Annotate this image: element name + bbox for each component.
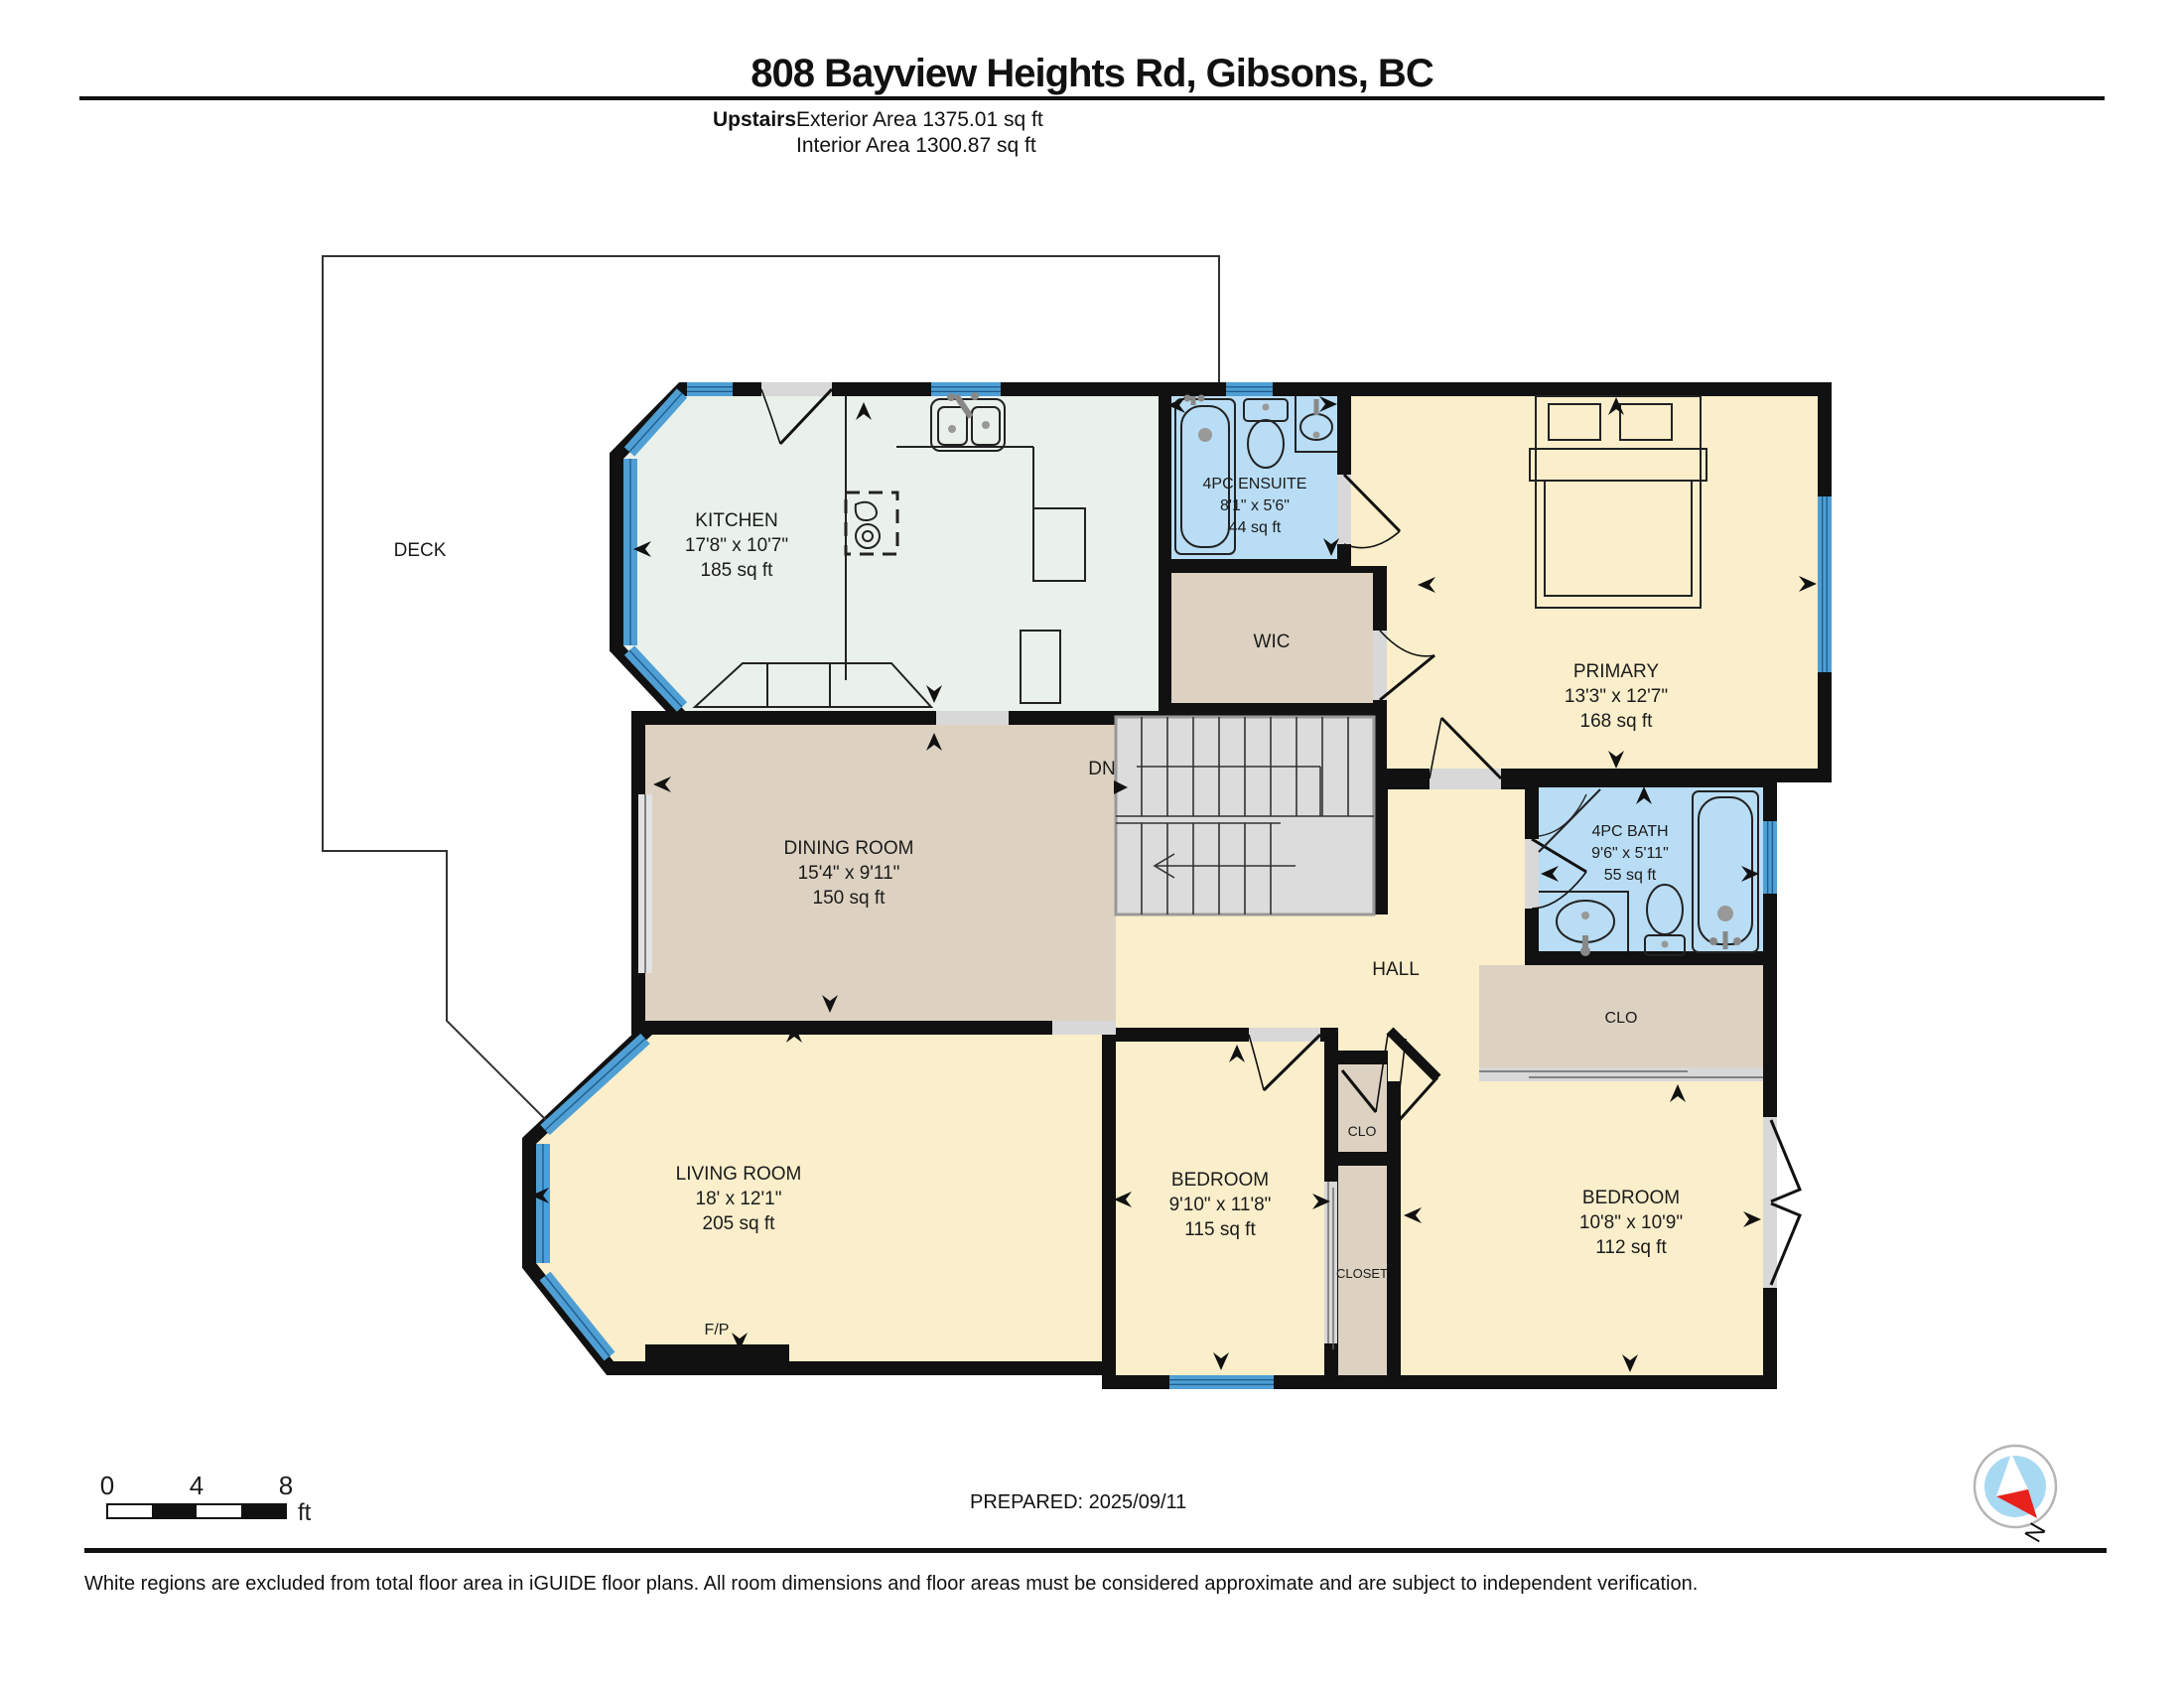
label-living-name: LIVING ROOM	[676, 1164, 802, 1185]
label-ensuite-name: 4PC ENSUITE	[1203, 476, 1307, 492]
label-dining-name: DINING ROOM	[784, 838, 914, 859]
label-kitchen-dims: 17'8" x 10'7"	[685, 535, 788, 556]
scale-tick-4: 4	[190, 1471, 204, 1500]
label-kitchen-name: KITCHEN	[695, 510, 777, 531]
label-bath-area: 55 sq ft	[1604, 867, 1657, 884]
label-dn: DN	[1088, 759, 1115, 779]
label-bath-name: 4PC BATH	[1591, 823, 1668, 840]
label-hall: HALL	[1372, 959, 1420, 980]
room-hall4	[1338, 1028, 1388, 1051]
footer-divider	[84, 1548, 2107, 1553]
label-bedroom1-dims: 9'10" x 11'8"	[1169, 1195, 1272, 1215]
room-hall1	[1116, 914, 1388, 1028]
bath-window	[1763, 821, 1777, 894]
label-deck: DECK	[394, 540, 447, 561]
bedroom2-french-opening	[1763, 1117, 1777, 1288]
kitchen-window-1	[687, 382, 733, 396]
label-bath-dims: 9'6" x 5'11"	[1591, 845, 1669, 862]
primary-window	[1818, 496, 1832, 672]
label-clo-small: CLO	[1348, 1123, 1377, 1139]
clo-sliding-doors	[1479, 1067, 1763, 1081]
label-bedroom2-name: BEDROOM	[1582, 1188, 1680, 1208]
room-living	[536, 1035, 1102, 1361]
label-dining-area: 150 sq ft	[813, 888, 887, 909]
label-bedroom2-area: 112 sq ft	[1595, 1237, 1667, 1258]
bedroom1-window	[1169, 1375, 1274, 1389]
fireplace-icon	[645, 1344, 789, 1372]
label-primary-name: PRIMARY	[1573, 661, 1660, 682]
disclaimer-text: White regions are excluded from total fl…	[84, 1573, 2129, 1596]
label-primary-dims: 13'3" x 12'7"	[1565, 686, 1668, 707]
label-ensuite-area: 44 sq ft	[1229, 519, 1282, 536]
kitchen-dining-opening	[936, 711, 1009, 725]
label-bedroom1-name: BEDROOM	[1171, 1170, 1269, 1191]
bedroom1-door-opening	[1249, 1028, 1320, 1042]
ensuite-window	[1226, 382, 1273, 396]
scale-tick-8: 8	[279, 1471, 293, 1500]
label-wic: WIC	[1254, 632, 1291, 652]
scale-bar: 048ft	[100, 1471, 312, 1526]
primary-door-opening	[1430, 769, 1501, 789]
label-ensuite-dims: 8'1" x 5'6"	[1220, 497, 1290, 514]
label-fp: F/P	[705, 1322, 730, 1338]
wic-door-opening	[1373, 631, 1387, 700]
kitchen-window-2	[931, 382, 1001, 396]
room-hall2	[1388, 789, 1525, 978]
label-primary-area: 168 sq ft	[1580, 711, 1654, 732]
dining-hall-opening	[1052, 1021, 1116, 1035]
label-living-area: 205 sq ft	[703, 1213, 776, 1234]
ensuite-door-opening	[1337, 475, 1351, 544]
deck-door-opening	[761, 382, 832, 396]
scale-unit: ft	[298, 1499, 312, 1526]
floor-plan: KITCHEN17'8" x 10'7"185 sq ft4PC ENSUITE…	[0, 0, 2184, 1688]
prepared-date: PREPARED: 2025/09/11	[970, 1491, 1186, 1514]
label-living-dims: 18' x 12'1"	[696, 1189, 782, 1209]
label-bedroom1-area: 115 sq ft	[1184, 1219, 1256, 1240]
bath-door-opening	[1525, 839, 1539, 909]
scale-tick-0: 0	[100, 1471, 114, 1500]
label-closet: CLOSET	[1336, 1266, 1388, 1281]
compass-icon: N	[1975, 1446, 2056, 1547]
room-hall3	[1388, 978, 1479, 1081]
label-kitchen-area: 185 sq ft	[701, 560, 774, 581]
dining-window	[638, 794, 652, 973]
label-dining-dims: 15'4" x 9'11"	[798, 863, 900, 884]
label-clo-hall: CLO	[1605, 1010, 1638, 1027]
label-bedroom2-dims: 10'8" x 10'9"	[1579, 1212, 1683, 1233]
